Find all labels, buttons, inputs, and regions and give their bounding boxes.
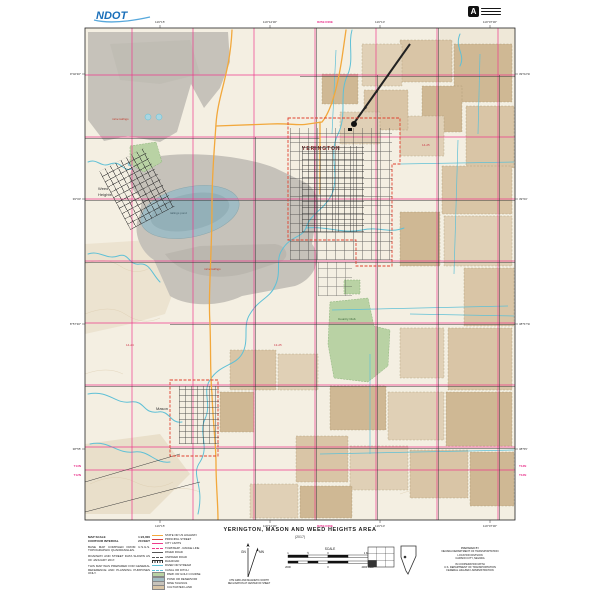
- legend-row: CULTIVATED LAND: [152, 586, 214, 590]
- edge-label-township-right-t13n: T13N: [519, 464, 526, 468]
- label-country-club: Country Club: [338, 317, 356, 321]
- legend-swatch-principal-street: [152, 539, 163, 540]
- map-sheet-page: NDOT A: [0, 0, 600, 600]
- scale-bar-title: SCALE: [325, 547, 335, 551]
- legend-symbols-block: STATE OR US HIGHWAY PRINCIPAL STREET CIT…: [152, 533, 214, 590]
- label-tailings-2: mine tailings: [204, 267, 221, 271]
- legend-swatch-highway: [152, 535, 163, 536]
- edge-label-township-right-t12n: T12N: [519, 473, 526, 477]
- label-mason: Mason: [156, 406, 168, 411]
- north-caption-line2: DECLINATION AT CENTER OF SHEET: [216, 583, 282, 586]
- mn-label: MN: [259, 550, 265, 554]
- edge-label-right: 38°57′30″: [519, 322, 530, 326]
- legend-note: THIS MAP WAS PREPARED FOR GENERAL REFERE…: [88, 565, 150, 576]
- location-dot: [404, 556, 407, 559]
- label-section-code-1: 14-25: [422, 143, 430, 147]
- legend-notes-block: MAP SCALE 1:24,000 CONTOUR INTERVAL 20 F…: [88, 536, 150, 576]
- legend-note: BASE MAP COMPILED FROM U.S.G.S. TOPOGRAP…: [88, 546, 150, 553]
- label-section-code-3: 14-24: [126, 343, 134, 347]
- edge-label-township-t13n: T13N: [74, 464, 81, 468]
- label-yerington: YERINGTON: [302, 146, 341, 152]
- scale-mile-tick: ½: [307, 551, 310, 555]
- legend-contour-label: CONTOUR INTERVAL: [88, 540, 119, 544]
- legend-contour-row: CONTOUR INTERVAL 20 FEET: [88, 540, 150, 544]
- map-canvas: YERINGTON Weed Heights Mason mine tailin…: [70, 14, 530, 530]
- nevada-outline-map: [399, 544, 423, 578]
- legend-swatch-railroad: [152, 560, 163, 564]
- prepared-by-block: PREPARED BY NEVADA DEPARTMENT OF TRANSPO…: [426, 547, 514, 573]
- legend-symbol-label: PARK OR GOLF COURSE: [167, 573, 201, 576]
- legend-swatch-cultivated: [152, 585, 165, 590]
- edge-label-left: 39°00′: [73, 197, 82, 201]
- edge-label-top: 119°07′30″: [483, 20, 497, 24]
- scale-bar: SCALE 1 ½ 0 1 MILE 2000 0 4000 FEET: [280, 546, 380, 572]
- edge-label-right: 39°02′30″: [519, 72, 530, 76]
- edge-label-top: 119°15′: [155, 20, 165, 24]
- legend-swatch-city-limits: [152, 543, 163, 544]
- edge-label-left: 38°55′: [73, 447, 82, 451]
- gn-label: GN: [241, 550, 246, 554]
- legend-swatch-township-line: [152, 548, 163, 549]
- north-arrow: GN MN: [226, 541, 272, 581]
- edge-label-top: 119°10′: [375, 20, 385, 24]
- legend-swatch-unpaved-road: [152, 557, 163, 558]
- sheet-index-map: [366, 545, 396, 571]
- label-weed-1: Weed: [98, 186, 108, 191]
- edge-label-top: 119°12′30″: [263, 20, 277, 24]
- legend-swatch-paved-road: [152, 552, 163, 553]
- prepared-line: FEDERAL HIGHWAY ADMINISTRATION: [426, 569, 514, 572]
- edge-label-left: 38°57′30″: [70, 322, 81, 326]
- edge-label-left: 39°02′30″: [70, 72, 81, 76]
- sheet-title: YERINGTON, MASON AND WEED HEIGHTS AREA: [0, 527, 600, 533]
- label-pit-lake: tailings pond: [170, 211, 187, 215]
- legend-swatch-river: [152, 565, 163, 566]
- edge-label-right: 38°55′: [519, 447, 528, 451]
- scale-feet-tick: 0: [327, 565, 329, 569]
- legend-symbol-label: RIVER OR STREAM: [165, 564, 191, 567]
- legend-note: ROADWAY AND STREET DATA SHOWN AS OF JANU…: [88, 555, 150, 562]
- label-weed-2: Heights: [98, 192, 112, 197]
- edge-label-right: 39°00′: [519, 197, 528, 201]
- north-arrow-caption: UTM GRID AND MAGNETIC NORTH DECLINATION …: [216, 580, 282, 586]
- edge-label-top-range: R25E R26E: [317, 20, 333, 24]
- scale-feet-tick: 2000: [285, 565, 291, 569]
- index-highlight-cell: [368, 560, 377, 567]
- scale-mile-tick: 1: [287, 551, 289, 555]
- scale-mile-tick: 0: [327, 551, 329, 555]
- legend-symbol-label: PAVED ROAD: [165, 551, 183, 554]
- legend-symbol-label: CULTIVATED LAND: [167, 586, 192, 589]
- label-section-code-2: 13-25: [274, 343, 282, 347]
- label-tailings-1: mine tailings: [112, 117, 129, 121]
- legend-swatch-canal: [152, 570, 163, 571]
- edge-label-township-t12n: T12N: [74, 473, 81, 477]
- legend-contour-value: 20 FEET: [138, 540, 150, 544]
- prepared-line: CARSON CITY, NEVADA: [426, 557, 514, 560]
